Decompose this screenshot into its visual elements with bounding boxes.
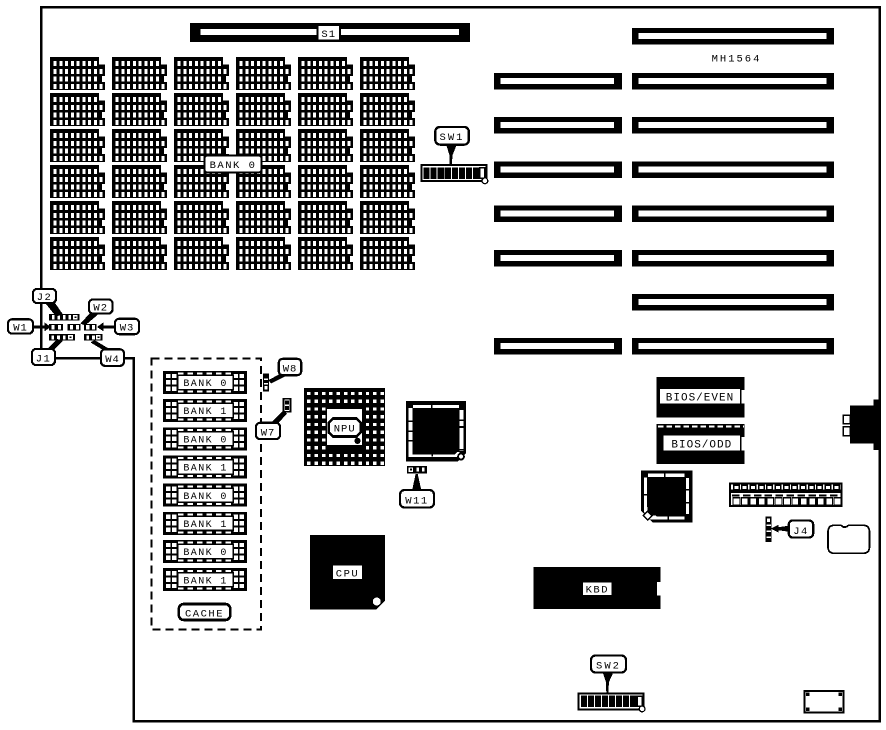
svg-text:SW2: SW2 <box>596 661 621 673</box>
svg-text:J4: J4 <box>793 526 809 538</box>
svg-text:W2: W2 <box>93 303 108 315</box>
svg-text:W4: W4 <box>105 354 120 366</box>
svg-text:J1: J1 <box>36 354 52 366</box>
svg-text:BANK 0: BANK 0 <box>183 492 227 503</box>
svg-text:W1: W1 <box>13 323 28 335</box>
svg-text:CPU: CPU <box>336 568 359 580</box>
svg-text:J2: J2 <box>37 292 53 304</box>
svg-text:MH1564: MH1564 <box>712 54 762 66</box>
svg-text:S1: S1 <box>321 29 336 41</box>
svg-text:CACHE: CACHE <box>185 609 224 621</box>
svg-text:W7: W7 <box>261 428 276 440</box>
svg-text:BANK 1: BANK 1 <box>183 520 227 531</box>
svg-text:BANK 0: BANK 0 <box>183 548 227 559</box>
svg-text:SW1: SW1 <box>440 132 465 144</box>
svg-text:BANK 0: BANK 0 <box>210 160 257 172</box>
svg-text:BANK 0: BANK 0 <box>183 435 227 446</box>
svg-text:NPU: NPU <box>334 424 356 436</box>
svg-text:BANK 1: BANK 1 <box>183 407 227 418</box>
svg-text:W3: W3 <box>120 323 135 335</box>
svg-text:BIOS/EVEN: BIOS/EVEN <box>666 392 734 404</box>
svg-text:W8: W8 <box>283 364 298 376</box>
svg-text:BANK 1: BANK 1 <box>183 576 227 587</box>
svg-text:KBD: KBD <box>586 584 609 596</box>
svg-text:BANK 1: BANK 1 <box>183 464 227 475</box>
svg-text:BANK 0: BANK 0 <box>183 379 227 390</box>
svg-text:W11: W11 <box>405 496 428 508</box>
svg-text:BIOS/ODD: BIOS/ODD <box>671 440 732 452</box>
